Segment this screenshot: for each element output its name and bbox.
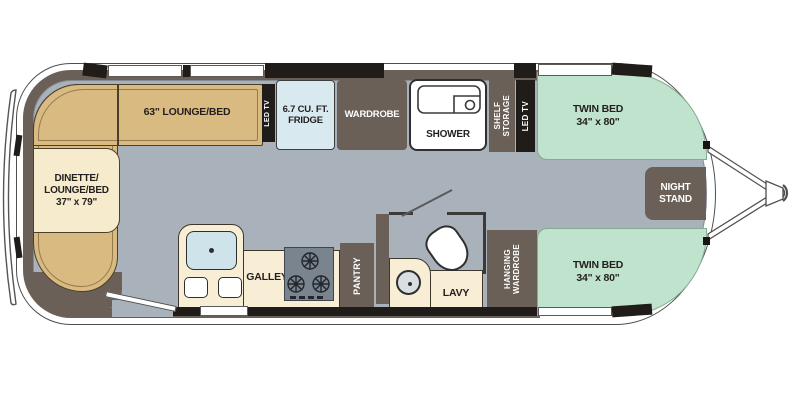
lavy-door-swing — [402, 190, 452, 216]
floor-plan: 63" LOUNGE/BED DINETTE/ LOUNGE/BED 37" x… — [0, 0, 800, 400]
hitch-mount-bottom — [703, 237, 710, 245]
hitch-jack — [766, 181, 783, 206]
hitch-mount-top — [703, 141, 710, 149]
hitch — [703, 141, 787, 245]
side-window-marks — [13, 135, 22, 259]
rear-bumper — [4, 90, 17, 305]
details-layer — [0, 0, 800, 400]
